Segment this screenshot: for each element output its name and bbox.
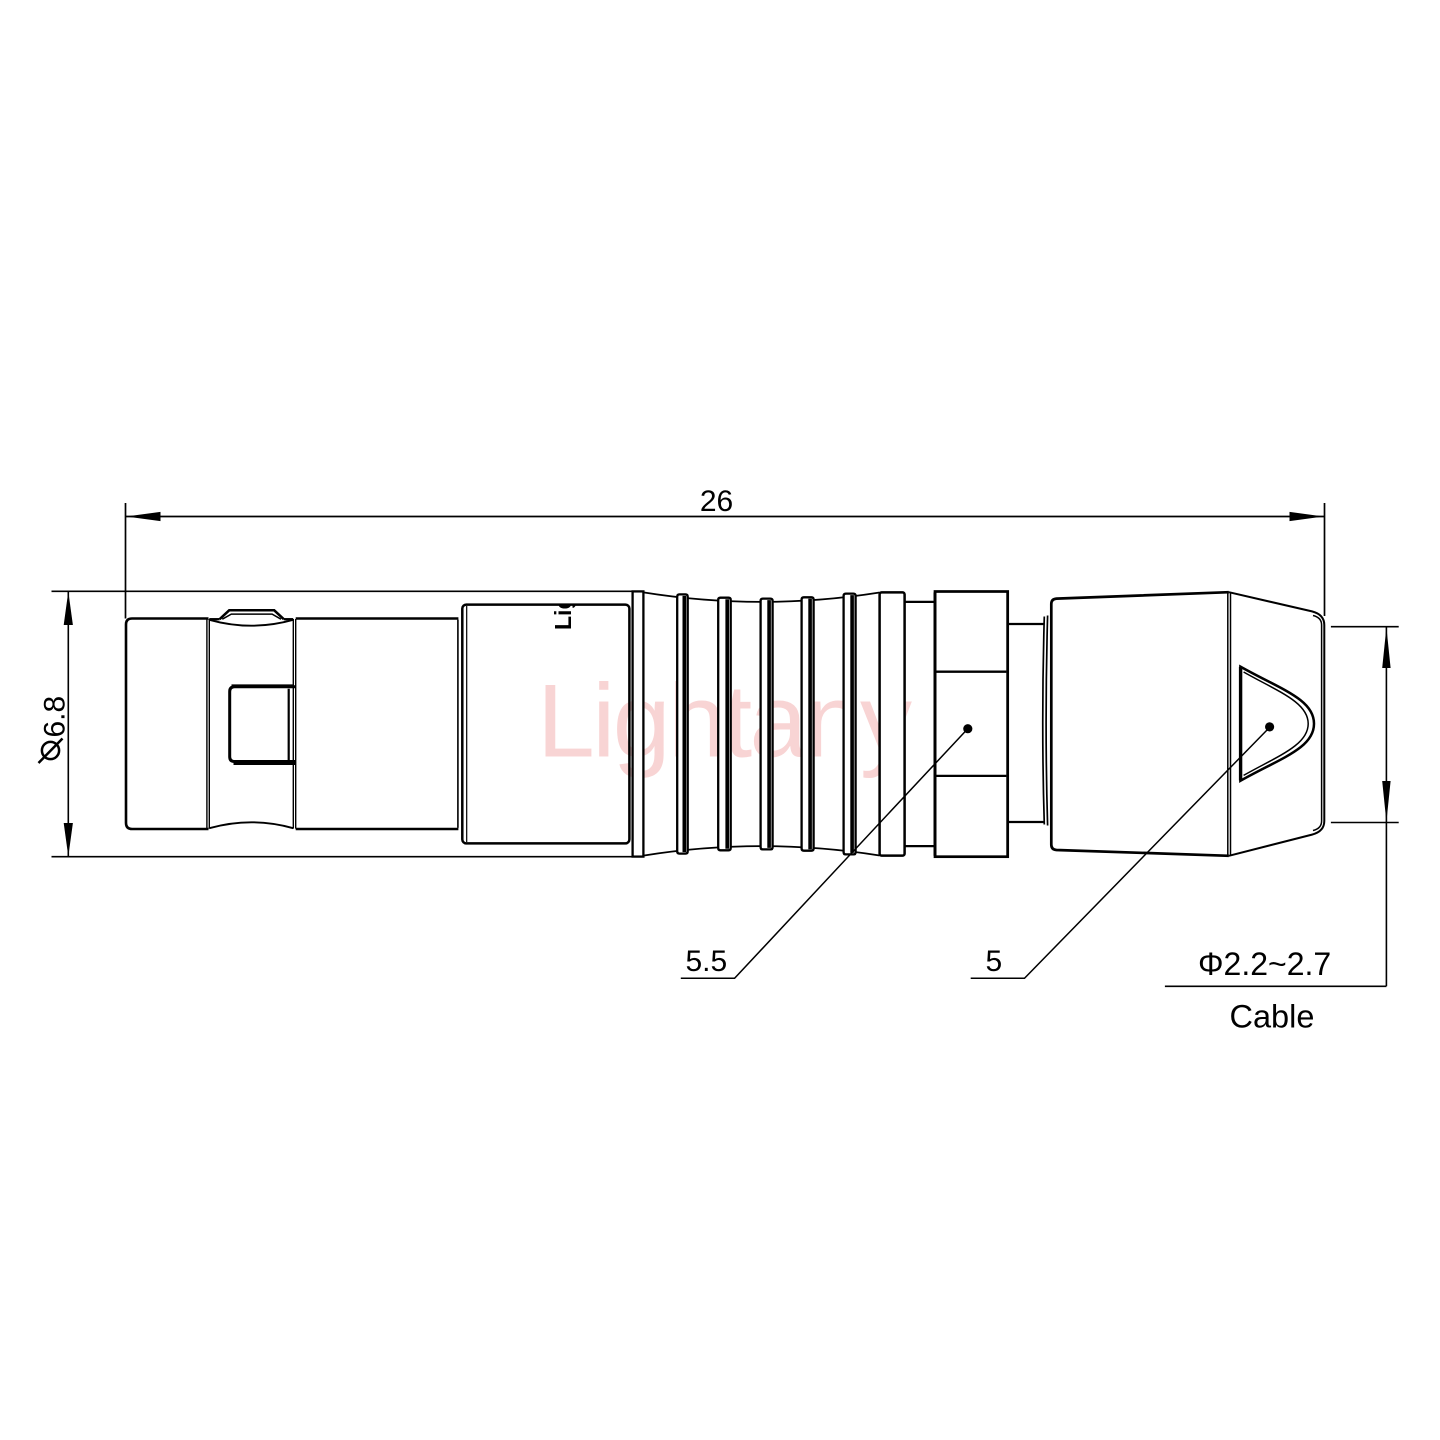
svg-text:Φ2.2~2.7: Φ2.2~2.7 xyxy=(1198,946,1331,982)
svg-text:6.8: 6.8 xyxy=(39,696,72,738)
svg-text:Cable: Cable xyxy=(1230,999,1315,1035)
svg-text:5.5: 5.5 xyxy=(686,945,728,978)
svg-text:5: 5 xyxy=(986,945,1003,978)
svg-text:26: 26 xyxy=(700,485,733,518)
